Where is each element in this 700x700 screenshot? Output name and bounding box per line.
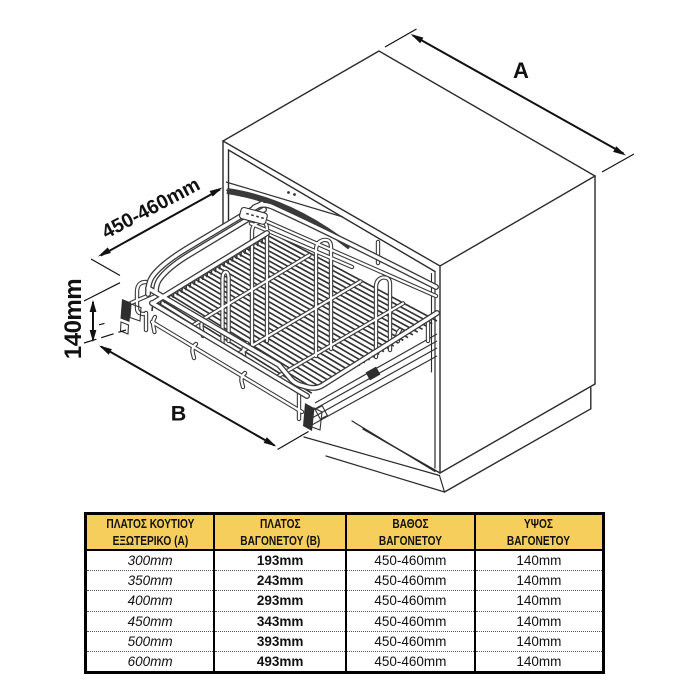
- svg-text:450-460mm: 450-460mm: [98, 173, 203, 243]
- svg-text:A: A: [513, 58, 529, 83]
- svg-text:B: B: [171, 402, 187, 426]
- svg-text:140mm: 140mm: [60, 279, 87, 359]
